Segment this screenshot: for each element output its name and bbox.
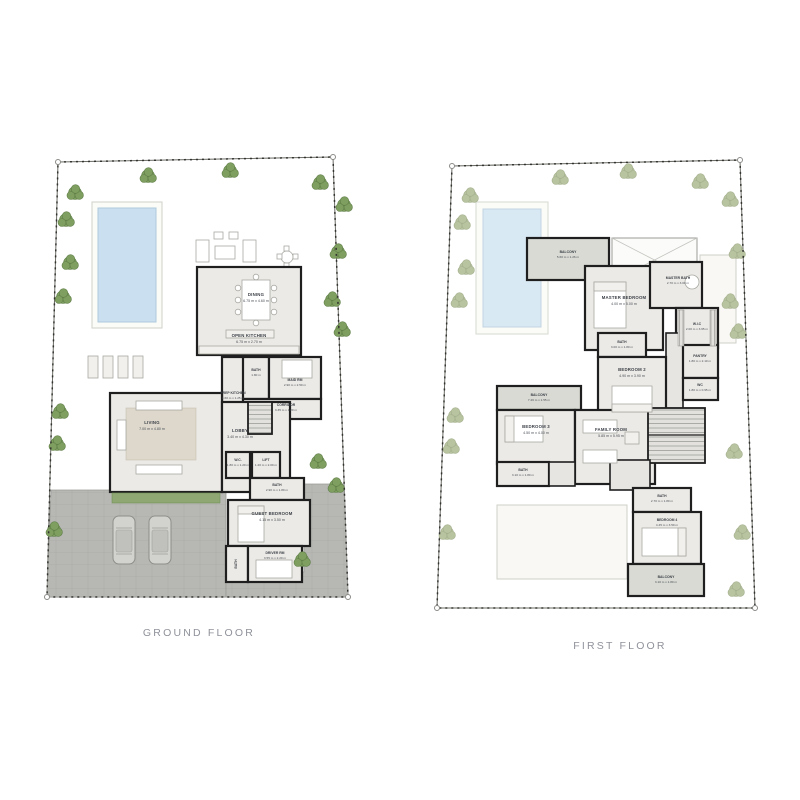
label-master-bedroom: MASTER BEDROOM <box>602 295 647 300</box>
dims-corridor: 3.35 m x 1.20 m <box>275 408 298 412</box>
first-floor-caption: FIRST FLOOR <box>573 640 666 652</box>
stairs <box>248 402 272 434</box>
dims-wc: 1.80 m x 1.20 m <box>227 463 250 467</box>
label-wc: W.C. <box>234 458 241 462</box>
family-sofa <box>583 450 617 463</box>
label-prep-kitchen: PREP KITCHEN <box>220 391 246 395</box>
dims-maid: 2.90 m x 2.50 m <box>284 383 307 387</box>
tree-icon <box>726 444 742 459</box>
kitchen-counter <box>199 346 299 354</box>
living-rug <box>126 408 196 460</box>
dims-driver: 3.55 m x 2.20 m <box>264 556 287 560</box>
label-bedroom-4: BEDROOM 4 <box>657 518 678 522</box>
maid-bed <box>282 360 312 378</box>
driver-bed <box>256 560 292 578</box>
tree-icon <box>454 215 470 230</box>
label-lobby: LOBBY <box>232 428 248 433</box>
dims-master-bedroom: 4.00 m x 5.00 m <box>611 302 637 306</box>
tree-icon <box>334 322 350 337</box>
tree-icon <box>330 244 346 259</box>
label-balcony-bottom: BALCONY <box>658 575 676 579</box>
sun-loungers <box>88 356 143 378</box>
label-balcony-left: BALCONY <box>531 393 549 397</box>
label-bath-4: BATH <box>657 494 667 498</box>
label-dining: DINING <box>248 292 265 297</box>
label-master-bath: MASTER BATH <box>666 276 691 280</box>
tree-icon <box>734 525 750 540</box>
tree-icon <box>451 293 467 308</box>
label-wc-first: WC <box>697 383 703 387</box>
car-icon <box>149 516 171 564</box>
label-corridor: CORRIDOR <box>277 403 296 407</box>
roof-over-living <box>497 505 627 579</box>
survey-marker-icon <box>45 595 50 600</box>
label-living: LIVING <box>144 420 160 425</box>
dims-family: 5.85 m x 5.95 m <box>598 434 624 438</box>
car-icon <box>113 516 135 564</box>
ground-floor-plan: DINING 6.75 m x 4.60 m OPEN KITCHEN 6.75… <box>45 155 353 640</box>
tree-icon <box>55 289 71 304</box>
dims-bedroom-3: 4.50 m x 4.00 m <box>523 431 549 435</box>
label-maid: MAID RM <box>288 378 303 382</box>
tree-icon <box>552 170 568 185</box>
survey-marker-icon <box>435 606 440 611</box>
label-bath-guest: BATH <box>272 483 282 487</box>
dims-lobby: 3.40 m x 4.30 m <box>227 435 253 439</box>
dims-wic: 2.00 m x 3.65 m <box>686 327 709 331</box>
first-floor-plan: BALCONY 5.60 m x 1.26 m MASTER BEDROOM 4… <box>435 158 758 653</box>
label-bath-3: BATH <box>518 468 528 472</box>
label-wic: W.I.C <box>693 322 702 326</box>
label-bedroom-3: BEDROOM 3 <box>522 424 550 429</box>
dims-bath-4: 2.70 m x 1.80 m <box>651 499 674 503</box>
dims-bedroom-2: 4.90 m x 3.90 m <box>619 374 645 378</box>
tree-icon <box>52 404 68 419</box>
tree-icon <box>67 185 83 200</box>
tree-icon <box>620 164 636 179</box>
dims-balcony-bottom: 3.10 m x 1.80 m <box>655 580 678 584</box>
dims-living: 7.00 m x 4.80 m <box>139 427 165 431</box>
survey-marker-icon <box>56 160 61 165</box>
outdoor-dining <box>277 246 298 268</box>
living-sofa <box>136 401 182 410</box>
label-open-kitchen: OPEN KITCHEN <box>232 333 267 338</box>
dims-master-bath: 2.70 m x 3.00 m <box>667 281 690 285</box>
wardrobe <box>678 310 684 346</box>
survey-marker-icon <box>346 595 351 600</box>
dims-bath-maid: 1.80 m <box>251 373 261 377</box>
tree-icon <box>447 408 463 423</box>
tree-icon <box>722 192 738 207</box>
living-armchair <box>117 420 126 450</box>
label-bedroom-2: BEDROOM 2 <box>618 367 646 372</box>
label-lift: LIFT <box>262 458 270 462</box>
hall-bed4 <box>610 460 650 490</box>
dims-dining: 6.75 m x 4.60 m <box>243 299 269 303</box>
dims-prep-kitchen: 4.60 m x 1.25 m <box>222 396 245 400</box>
dims-bath-2: 3.00 m x 1.80 m <box>611 345 634 349</box>
survey-marker-icon <box>738 158 743 163</box>
label-bath-maid: BATH <box>251 368 261 372</box>
outdoor-lounge <box>196 232 256 262</box>
dims-bath-guest: 2.90 m x 1.80 m <box>266 488 289 492</box>
pool <box>92 202 162 328</box>
tree-icon <box>336 197 352 212</box>
label-bath-driver: BATH <box>234 559 238 569</box>
dims-pantry: 1.80 m x 2.10 m <box>689 359 712 363</box>
dims-balcony-left: 7.26 m x 1.55 m <box>528 398 551 402</box>
dims-bedroom-4: 4.45 m x 3.50 m <box>656 523 679 527</box>
dims-bath-3: 3.10 m x 1.80 m <box>512 473 535 477</box>
tree-icon <box>462 188 478 203</box>
tree-icon <box>58 212 74 227</box>
hall-small <box>549 462 575 486</box>
survey-marker-icon <box>450 164 455 169</box>
tree-icon <box>310 454 326 469</box>
room-bath-maid <box>243 357 269 399</box>
tree-icon <box>728 582 744 597</box>
tree-icon <box>62 255 78 270</box>
label-bath-2: BATH <box>617 340 627 344</box>
label-family: FAMILY ROOM <box>595 427 627 432</box>
survey-marker-icon <box>753 606 758 611</box>
driveway <box>47 490 226 597</box>
ground-floor-caption: GROUND FLOOR <box>143 627 255 639</box>
tree-icon <box>692 174 708 189</box>
hedge <box>112 493 220 503</box>
floor-plans-figure: DINING 6.75 m x 4.60 m OPEN KITCHEN 6.75… <box>0 0 800 800</box>
label-pantry: PANTRY <box>693 354 707 358</box>
family-table <box>625 432 639 444</box>
tree-icon <box>328 478 344 493</box>
tree-icon <box>439 525 455 540</box>
tree-icon <box>312 175 328 190</box>
tree-icon <box>458 260 474 275</box>
wardrobe <box>710 310 716 346</box>
dims-lift: 1.20 m x 2.00 m <box>255 463 278 467</box>
tree-icon <box>222 163 238 178</box>
dims-open-kitchen: 6.75 m x 2.70 m <box>236 340 262 344</box>
dims-balcony-top: 5.60 m x 1.26 m <box>557 255 580 259</box>
label-guest-bedroom: GUEST BEDROOM <box>251 511 292 516</box>
pool-water <box>98 208 156 322</box>
label-driver: DRIVER RM <box>265 551 284 555</box>
label-balcony-top: BALCONY <box>560 250 578 254</box>
dims-guest-bedroom: 4.15 m x 3.50 m <box>259 518 285 522</box>
dims-wc-first: 1.80 m x 0.95 m <box>689 388 712 392</box>
tree-icon <box>140 168 156 183</box>
living-sofa <box>136 465 182 474</box>
survey-marker-icon <box>331 155 336 160</box>
tree-icon <box>443 439 459 454</box>
